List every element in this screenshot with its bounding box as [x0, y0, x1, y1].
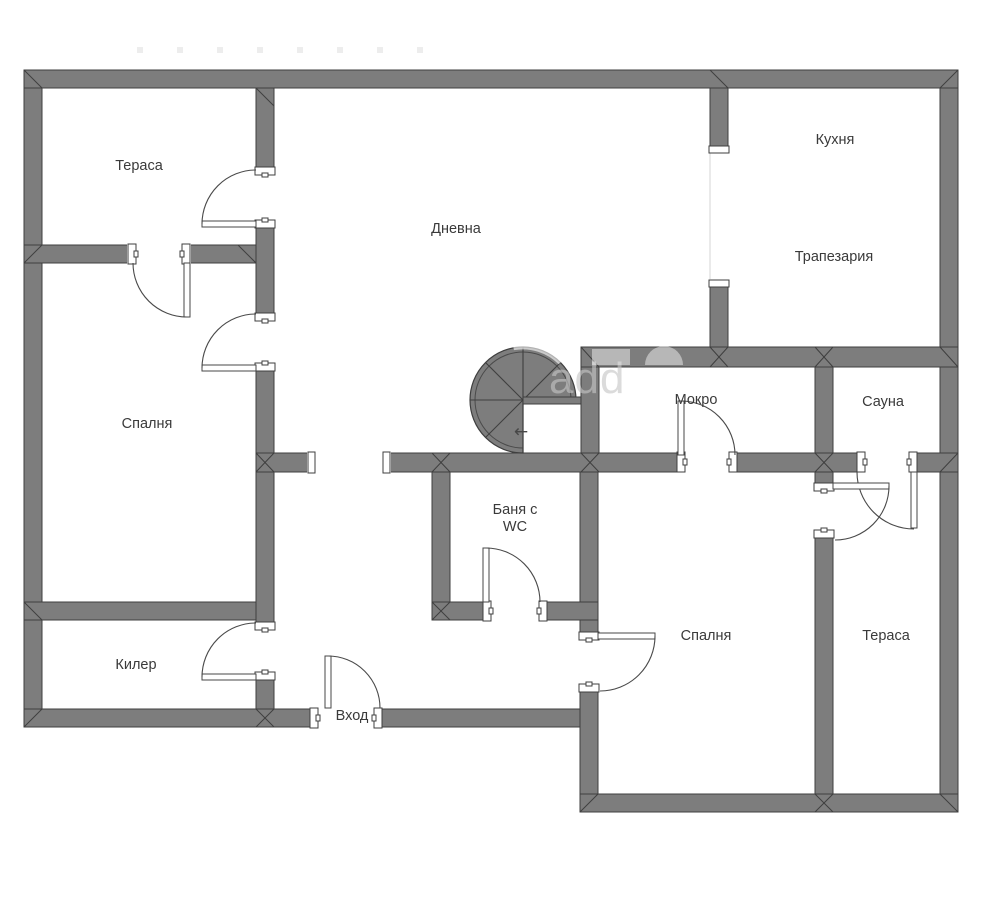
door-leaf	[678, 401, 684, 455]
room-label-entrance: Вход	[336, 708, 369, 724]
stair-direction-arrow-icon: ←	[514, 422, 528, 442]
room-label-bathroom-line2: WC	[503, 519, 527, 535]
wall-left-exterior	[24, 88, 42, 727]
opening-living-corridor	[307, 452, 391, 473]
watermark-patch	[592, 349, 630, 365]
floor-plan-canvas: ← Тераса Дневна Кухня Трапезария Спалня …	[0, 0, 1000, 913]
door-leaf	[483, 548, 489, 602]
room-bathroom-wc	[450, 472, 580, 602]
room-label-bedroom-right: Спалня	[681, 628, 732, 644]
wall-dining-bottom	[581, 347, 958, 367]
wall-kitchen-divider-upper	[710, 88, 728, 146]
room-entrance-hall	[274, 472, 432, 709]
room-label-bedroom-left: Спалня	[122, 416, 173, 432]
wall-bathroom-left	[432, 472, 450, 602]
room-kitchen-dining	[728, 88, 940, 347]
room-bedroom-left	[42, 263, 256, 602]
wall-closet-top	[24, 602, 256, 620]
wall-bottom-left-exterior	[24, 709, 580, 727]
room-label-bathroom-line1: Баня с	[493, 502, 538, 518]
room-label-dining-room: Трапезария	[795, 249, 874, 265]
door-leaf	[202, 221, 256, 227]
wall-kitchen-divider-lower	[710, 287, 728, 347]
wall-wetroom-sauna-divider	[815, 367, 833, 453]
room-sauna	[833, 367, 940, 453]
floor-plan-page: ← Тераса Дневна Кухня Трапезария Спалня …	[0, 0, 1000, 913]
room-label-closet: Килер	[115, 657, 156, 673]
door-leaf	[325, 656, 331, 708]
room-wet-room	[599, 367, 815, 453]
wall-end-cap	[709, 280, 729, 287]
door-leaf	[911, 472, 917, 528]
room-label-sauna: Сауна	[862, 394, 905, 410]
wall-bottom-right-exterior	[580, 794, 958, 812]
wall-end-cap	[709, 146, 729, 153]
door-leaf	[184, 263, 190, 317]
wall-right-exterior	[940, 88, 958, 812]
door-leaf	[598, 633, 655, 639]
door-leaf	[833, 483, 889, 489]
room-label-kitchen: Кухня	[816, 132, 855, 148]
room-label-terrace-top-left: Тераса	[115, 158, 163, 174]
room-label-living-room: Дневна	[431, 221, 482, 237]
wall-top-exterior	[24, 70, 958, 88]
room-label-wet-room: Мокро	[675, 392, 718, 408]
door-leaf	[202, 365, 256, 371]
room-label-terrace-bottom-right: Тераса	[862, 628, 910, 644]
door-leaf	[202, 674, 256, 680]
